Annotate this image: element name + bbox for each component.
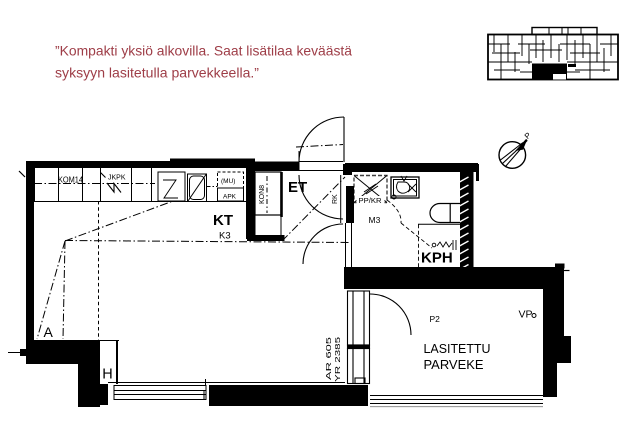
svg-text:PP/KR: PP/KR: [359, 198, 382, 205]
svg-text:syksyyn lasitetulla parvekkeel: syksyyn lasitetulla parvekkeella.”: [55, 65, 259, 80]
svg-text:RK: RK: [332, 194, 339, 204]
svg-text:P: P: [523, 131, 533, 141]
svg-text:K3: K3: [219, 231, 231, 242]
svg-text:(MU): (MU): [221, 178, 235, 185]
svg-text:KT: KT: [213, 212, 233, 229]
svg-text:”Kompakti yksiö alkovilla. Saa: ”Kompakti yksiö alkovilla. Saat lisätila…: [55, 43, 352, 58]
svg-text:ET: ET: [288, 179, 307, 196]
svg-text:P2: P2: [430, 314, 441, 324]
svg-text:KPH: KPH: [421, 250, 453, 267]
svg-text:H: H: [102, 367, 112, 383]
svg-text:APK: APK: [223, 194, 237, 201]
svg-text:VP: VP: [519, 309, 533, 321]
svg-text:KOM14: KOM14: [58, 176, 84, 185]
svg-text:AR 605: AR 605: [324, 337, 333, 380]
svg-text:YR 2385: YR 2385: [333, 337, 342, 382]
svg-text:LASITETTU: LASITETTU: [424, 342, 491, 356]
svg-text:A: A: [44, 324, 54, 340]
svg-text:M3: M3: [369, 215, 381, 225]
svg-text:KON8: KON8: [259, 185, 266, 204]
svg-text:PARVEKE: PARVEKE: [424, 358, 484, 372]
svg-text:JKPK: JKPK: [108, 173, 126, 182]
